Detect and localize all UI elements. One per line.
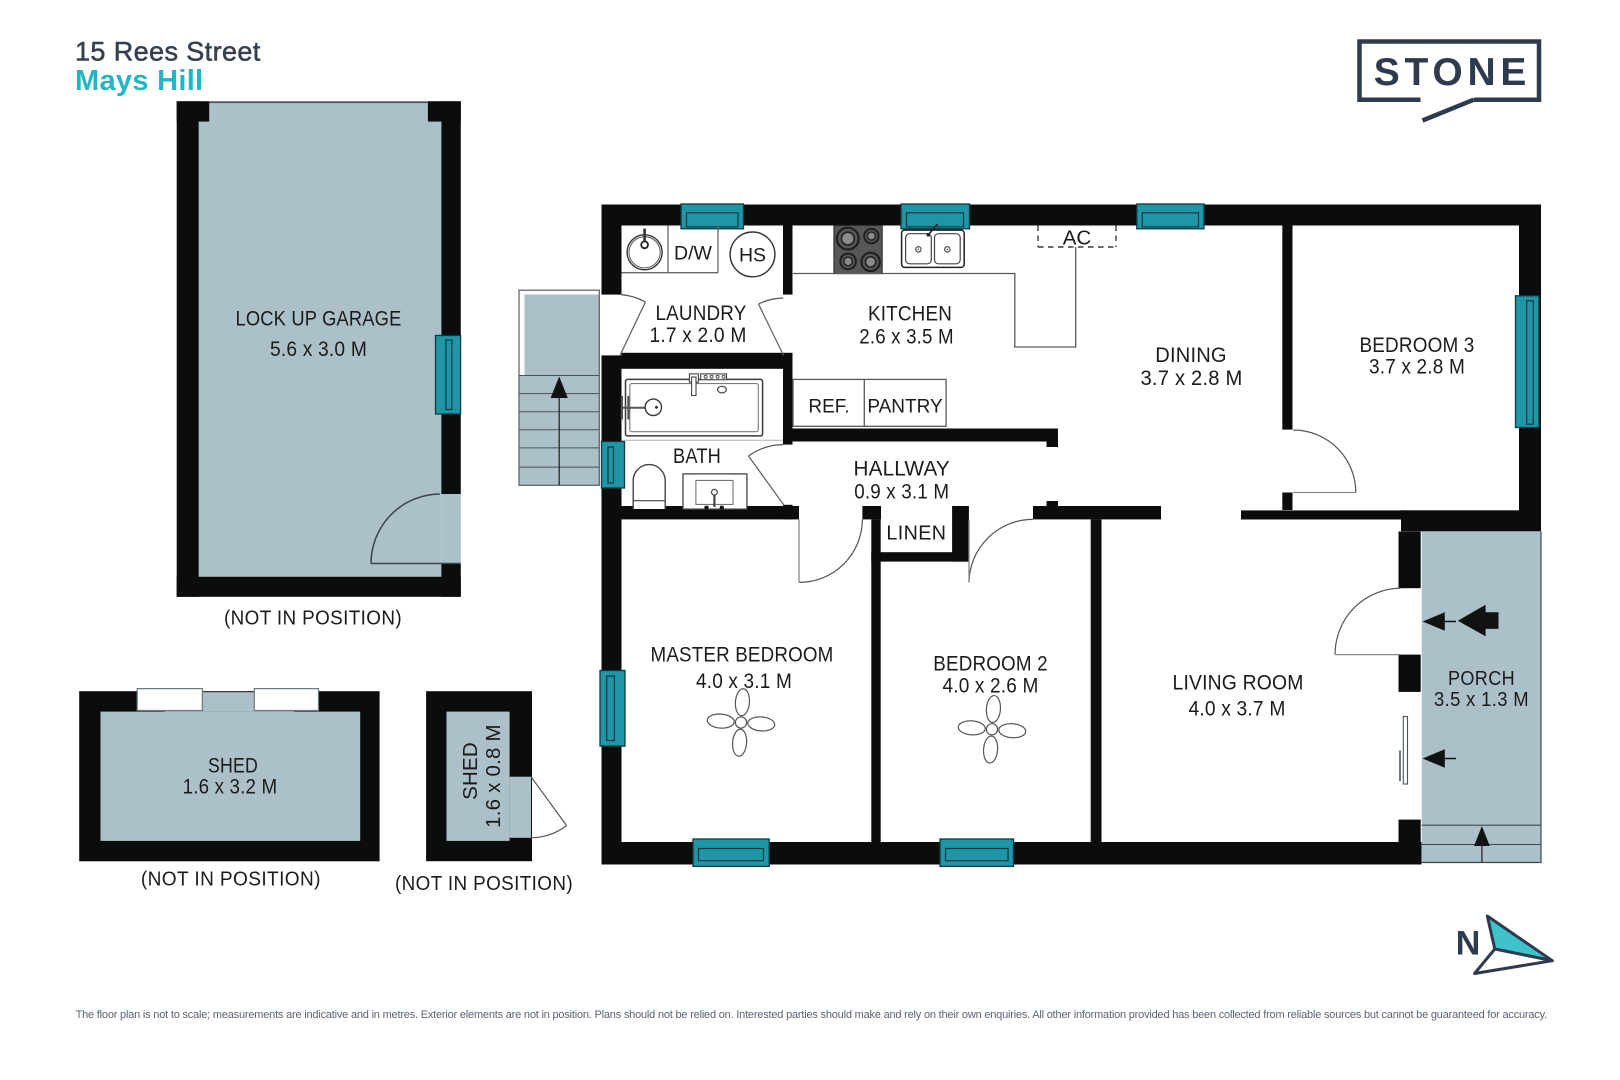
- svg-text:(NOT IN POSITION): (NOT IN POSITION): [141, 869, 321, 891]
- svg-text:1.7 x 2.0 M: 1.7 x 2.0 M: [650, 323, 747, 347]
- svg-text:SHED: SHED: [459, 742, 482, 800]
- svg-text:LAUNDRY: LAUNDRY: [656, 301, 747, 325]
- svg-text:(NOT IN POSITION): (NOT IN POSITION): [395, 873, 573, 895]
- svg-text:1.6 x 3.2 M: 1.6 x 3.2 M: [183, 775, 278, 799]
- svg-text:(NOT IN POSITION): (NOT IN POSITION): [224, 608, 402, 630]
- svg-text:0.9 x 3.1 M: 0.9 x 3.1 M: [854, 480, 949, 504]
- svg-text:PANTRY: PANTRY: [867, 397, 943, 418]
- svg-text:MASTER BEDROOM: MASTER BEDROOM: [651, 642, 834, 666]
- svg-text:HALLWAY: HALLWAY: [853, 457, 950, 481]
- svg-text:3.7 x 2.8 M: 3.7 x 2.8 M: [1141, 366, 1243, 390]
- svg-text:BATH: BATH: [673, 444, 721, 468]
- svg-text:3.7 x 2.8 M: 3.7 x 2.8 M: [1369, 355, 1465, 379]
- svg-text:DINING: DINING: [1155, 343, 1227, 367]
- svg-text:3.5 x 1.3 M: 3.5 x 1.3 M: [1434, 688, 1529, 711]
- svg-text:LOCK UP GARAGE: LOCK UP GARAGE: [236, 307, 402, 331]
- svg-text:KITCHEN: KITCHEN: [868, 301, 952, 325]
- svg-text:4.0 x 2.6 M: 4.0 x 2.6 M: [943, 674, 1039, 698]
- svg-text:Mays Hill: Mays Hill: [75, 65, 203, 97]
- svg-text:5.6 x 3.0 M: 5.6 x 3.0 M: [270, 337, 367, 361]
- svg-text:PORCH: PORCH: [1448, 667, 1515, 690]
- svg-text:BEDROOM 3: BEDROOM 3: [1360, 333, 1475, 357]
- svg-text:D/W: D/W: [674, 243, 713, 265]
- svg-text:2.6 x 3.5 M: 2.6 x 3.5 M: [859, 325, 954, 349]
- svg-text:BEDROOM 2: BEDROOM 2: [933, 651, 1048, 675]
- svg-text:STONE: STONE: [1374, 51, 1531, 94]
- svg-text:LIVING ROOM: LIVING ROOM: [1173, 670, 1304, 694]
- svg-text:N: N: [1456, 924, 1481, 962]
- svg-text:The floor plan is not to scale: The floor plan is not to scale; measurem…: [76, 1009, 1547, 1021]
- svg-text:AC: AC: [1063, 227, 1092, 250]
- svg-text:15 Rees Street: 15 Rees Street: [75, 37, 261, 67]
- svg-text:REF.: REF.: [808, 397, 849, 418]
- svg-text:1.6 x 0.8 M: 1.6 x 0.8 M: [482, 724, 505, 828]
- svg-text:HS: HS: [739, 245, 766, 267]
- svg-text:4.0 x 3.7 M: 4.0 x 3.7 M: [1189, 697, 1286, 721]
- svg-text:LINEN: LINEN: [886, 523, 946, 545]
